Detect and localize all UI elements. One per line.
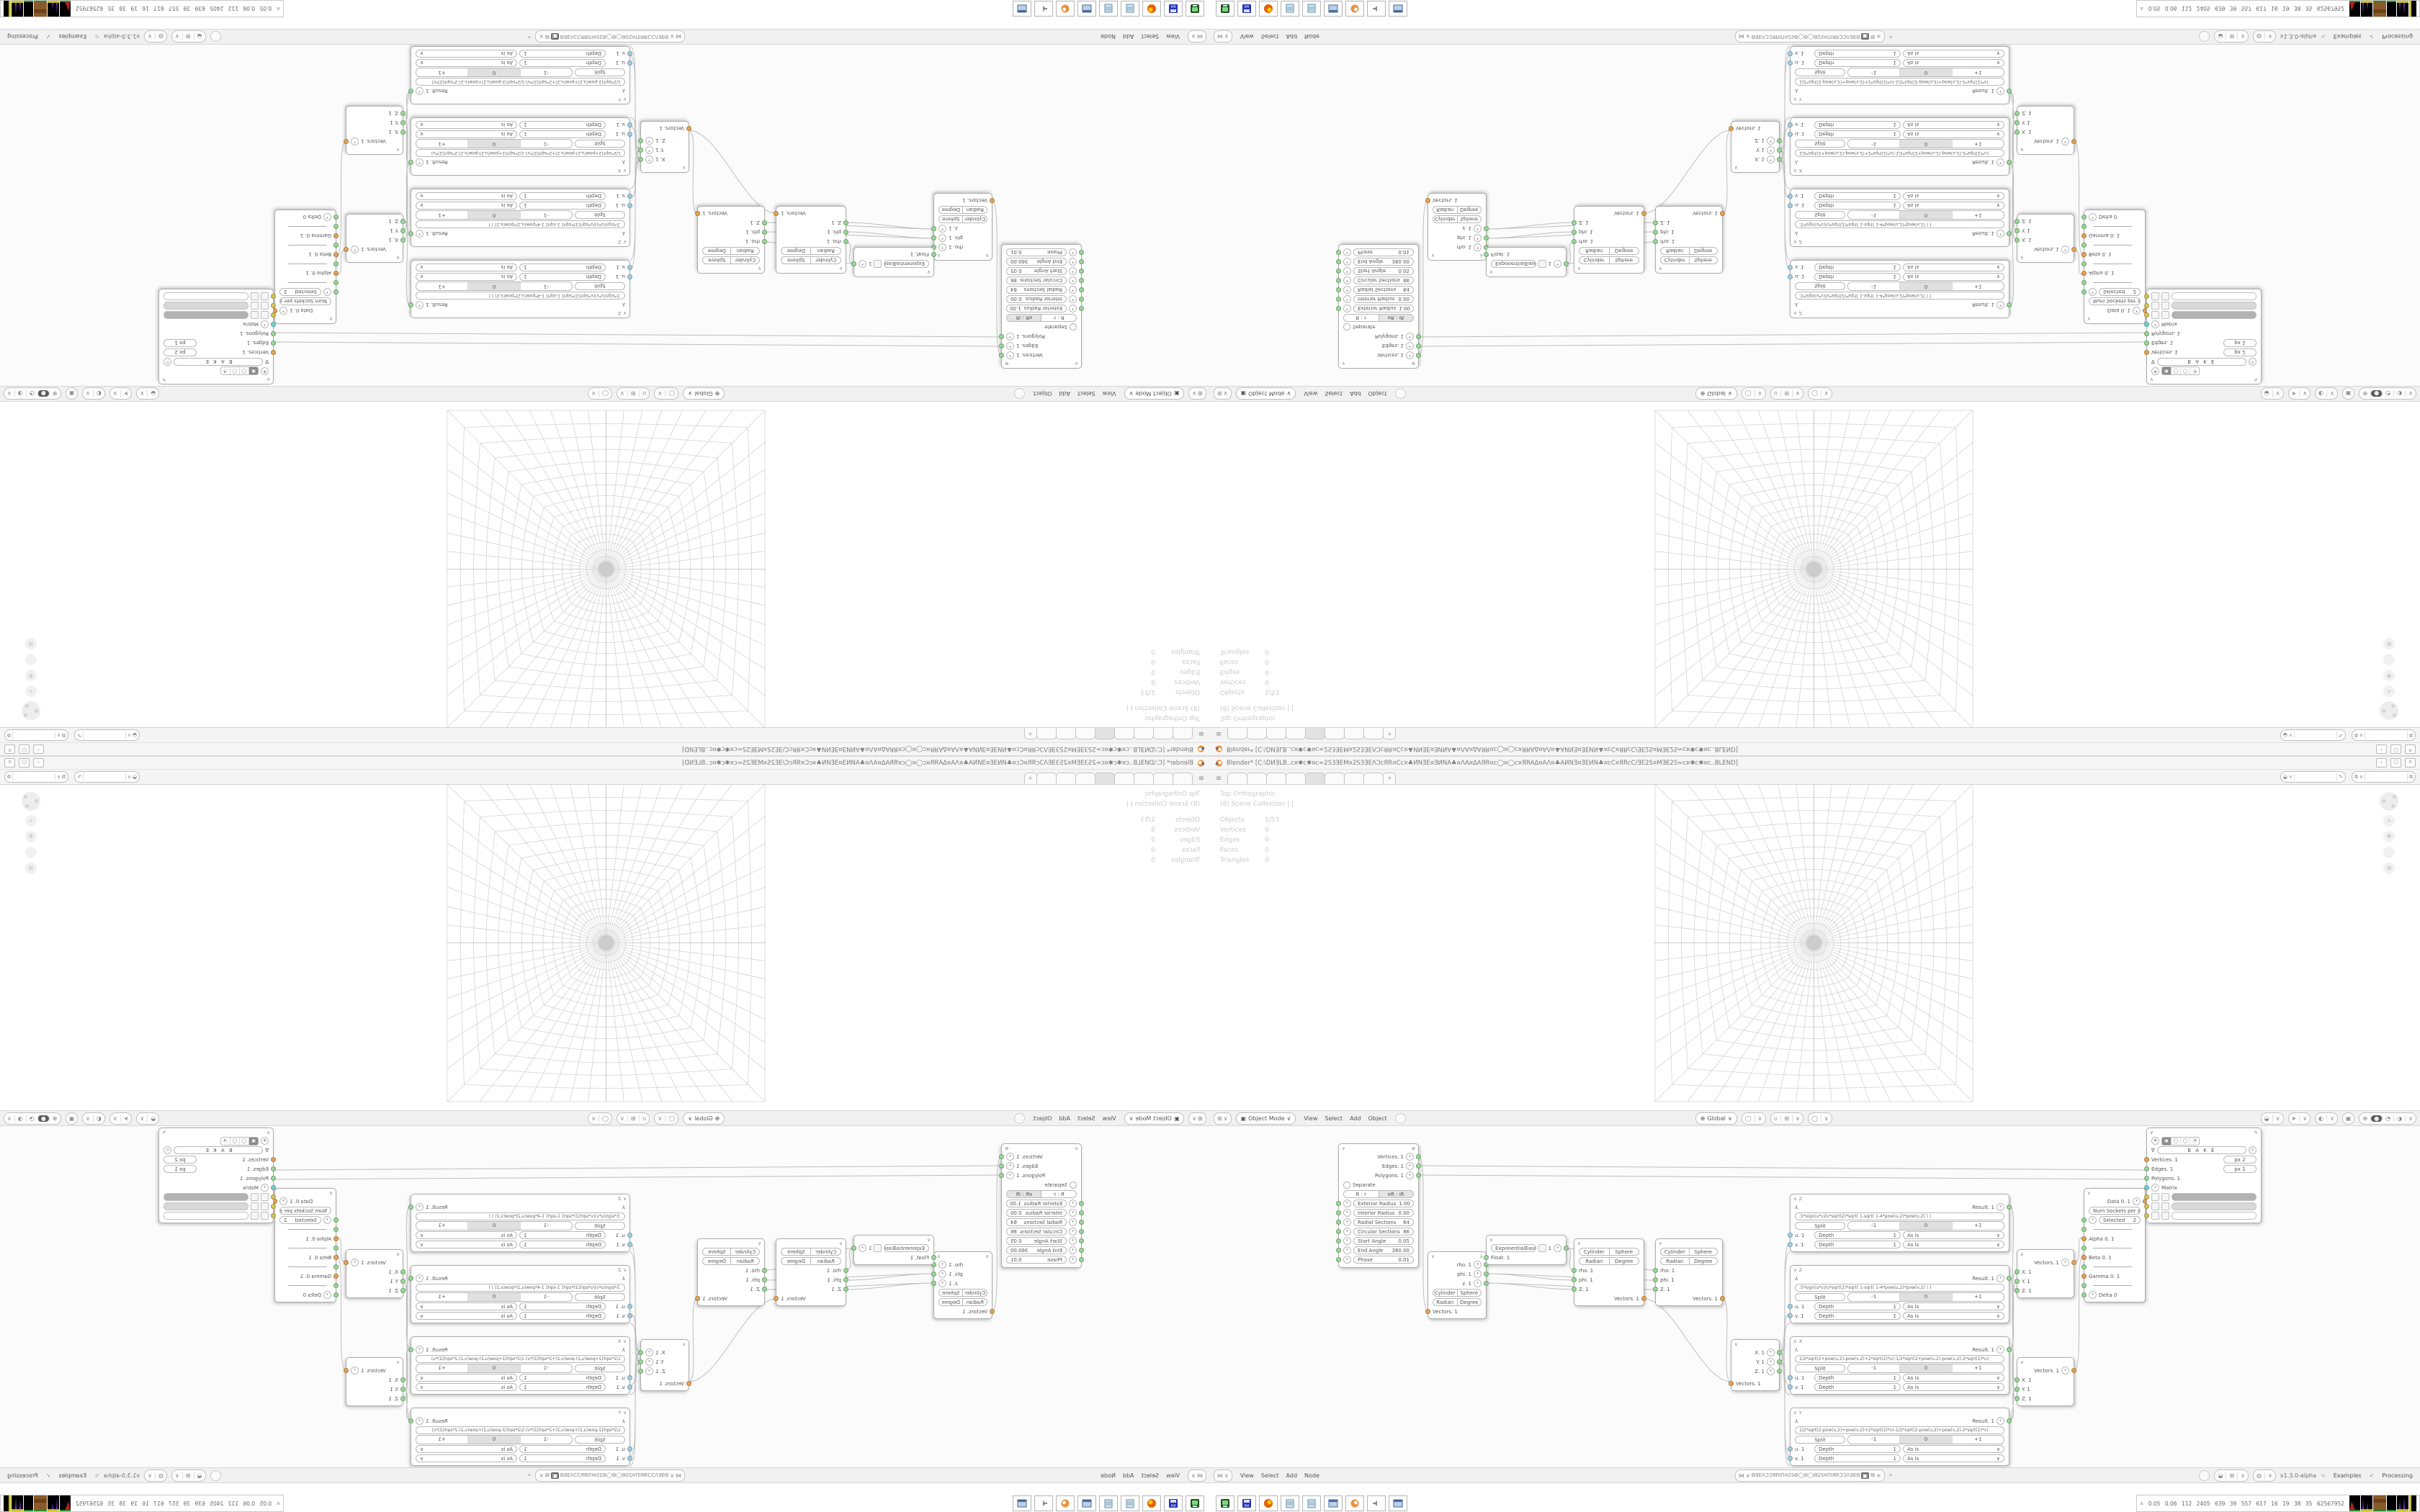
input-socket-row[interactable]: Z. 1 <box>1656 1284 1722 1294</box>
snap-group[interactable]: ◯ ∨ <box>654 1112 678 1125</box>
slot-row[interactable]: ▾Delta 0 <box>275 1290 336 1300</box>
ball-group[interactable]: ◍ ∨ <box>2253 31 2276 43</box>
vertices-input-row[interactable]: Vertices. 1 px 2 <box>159 348 273 357</box>
node-easing[interactable]: ∨ ExponentialEaseIn∨ 1 ▾ Float. 1 <box>1486 1235 1567 1265</box>
vertices-input-row[interactable]: Vertices. 1 px 2 <box>159 1155 273 1164</box>
v-input-row[interactable]: v. 1 Depth1 As is∨ <box>411 1382 629 1392</box>
output-socket-row[interactable]: Vectors. 1▾ <box>2017 1258 2074 1267</box>
input-socket-row[interactable]: rho. 1 <box>698 1266 764 1275</box>
torus-param-row[interactable]: ▾ Exterior Radius1.00 <box>1002 1199 1081 1208</box>
viewlayer-selector[interactable]: ⧉ ∨ ⧉ <box>4 729 68 741</box>
selected-row[interactable]: ▾ Selected2 <box>2084 1215 2145 1225</box>
menu-item[interactable]: Add <box>1055 1115 1074 1122</box>
ortho-gizmo-icon[interactable]: ⊞ <box>25 638 37 649</box>
menu-item[interactable]: View <box>1237 1472 1258 1479</box>
minimize-button[interactable]: – <box>33 744 44 754</box>
workspace-tab[interactable] <box>1075 728 1095 739</box>
input-socket-row[interactable]: Z. 1 <box>2017 217 2074 226</box>
magnet-group[interactable]: ∪ ⊞ ∨ <box>1770 388 1803 400</box>
user-grid-group[interactable]: ◒ ⊞ ∨ <box>2214 31 2249 43</box>
torus-param-row[interactable]: ▾ End Angle360.00 <box>1002 1246 1081 1255</box>
u-input-row[interactable]: u. 1 Depth1 As is∨ <box>411 272 629 282</box>
fake-user-shield-icon[interactable]: ▣ <box>1861 34 1870 40</box>
coords-toggle[interactable]: CylinderSphere <box>934 215 992 224</box>
node-editor[interactable]: ∨ ⊛ Vertices. 1▾ Edges. 1▾ Polygons. 1▾ … <box>1210 1126 2420 1467</box>
notepad-icon[interactable] <box>1281 1 1299 17</box>
output-socket-row[interactable]: Vectors. 1▾ <box>2017 1366 2074 1375</box>
input-socket-row[interactable]: Float. 1 <box>1487 1253 1566 1262</box>
node-editor[interactable]: ∨ ⊛ Vertices. 1▾ Edges. 1▾ Polygons. 1▾ … <box>0 45 1210 386</box>
polygon-color-row[interactable] <box>159 1211 273 1220</box>
floppy64-icon[interactable]: 64 <box>1164 1 1183 17</box>
selected-row[interactable]: ▾ Selected2 <box>275 1215 336 1225</box>
output-socket-row[interactable]: Polygons. 1▾ <box>1339 332 1418 341</box>
v-input-row[interactable]: v. 1 Depth1 As is∨ <box>411 49 629 58</box>
slot-row[interactable]: ▾Delta 0 <box>2084 1290 2145 1300</box>
node-easing[interactable]: ∨ ExponentialEaseIn∨ 1 ▾ Float. 1 <box>853 1235 934 1265</box>
collapse-icon[interactable]: ∨ <box>1342 361 1345 367</box>
input-socket-row[interactable]: phi. 1 <box>1656 1275 1722 1284</box>
node-vector-in-1[interactable]: ∨ Vectors. 1▾ X. 1 Y. 1 Z. 1 <box>2017 214 2074 263</box>
editor-type-button[interactable]: ⋈ ∨ <box>1188 31 1206 43</box>
split-row[interactable]: Split -1 0 +1 <box>411 282 629 291</box>
maximize-button[interactable]: ▢ <box>2390 744 2401 754</box>
firefox-icon[interactable] <box>1259 1 1278 17</box>
workspace-tab[interactable] <box>1056 773 1076 784</box>
slot-row[interactable]: Gamma 0. 1 <box>275 231 336 240</box>
scene-selector[interactable]: ◒ ∨ ✎ <box>74 729 140 741</box>
output-socket-row[interactable]: phi. 1▾ <box>1428 233 1486 243</box>
node-torus[interactable]: ∨ ⊛ Vertices. 1▾ Edges. 1▾ Polygons. 1▾ … <box>1001 244 1082 369</box>
input-socket-row[interactable]: Z. 1 <box>776 218 846 228</box>
input-socket-row[interactable]: Z. 1 <box>698 218 764 228</box>
magnet-group[interactable]: ∪ ⊞ ∨ <box>617 388 650 400</box>
torus-param-row[interactable]: ▾ Start Angle0.05 <box>1002 1236 1081 1246</box>
output-socket-row[interactable]: Edges. 1▾ <box>1339 1161 1418 1171</box>
torus-param-row[interactable]: ▾ Circular Sections86 <box>1339 276 1418 285</box>
input-socket-row[interactable]: phi. 1 <box>1574 1275 1644 1284</box>
split-row[interactable]: Split -1 0 +1 <box>411 1221 629 1230</box>
matrix-input-row[interactable]: ▾Matrix <box>159 320 273 329</box>
gizmo-toggle-group[interactable]: ➤ ∨ <box>2288 1112 2311 1125</box>
torus-param-row[interactable]: ▾ End Angle360.00 <box>1339 257 1418 266</box>
camera-gizmo-icon[interactable] <box>2383 654 2395 665</box>
add-workspace-button[interactable]: + <box>1383 773 1396 784</box>
menu-item[interactable]: Select <box>1137 1472 1162 1479</box>
u-input-row[interactable]: u. 1 Depth1 As is∨ <box>411 130 629 139</box>
node-formula[interactable]: ∨ Y ⅄ Result. 1▾ 1/2*sqrt(2-pow(u,2)+pow… <box>411 1408 630 1466</box>
visibility-group[interactable]: ◒ ∨ <box>136 1112 159 1125</box>
output-socket-row[interactable]: Z. 1▾ <box>1731 136 1779 145</box>
separate-checkbox-row[interactable]: Separate <box>1339 1180 1418 1189</box>
split-row[interactable]: Split -1 0 +1 <box>411 1364 629 1373</box>
viewport-3d[interactable]: Top Orthographic (8) Scene Collection | … <box>1210 785 2420 1110</box>
node-viewer-draw[interactable]: ∨ ✎ ◉ ▣◯◯◔ ∇ B A K E ◎ Vertices. 1 px 2 … <box>158 1128 274 1223</box>
vertices-input-row[interactable]: Vertices. 1 px 2 <box>2147 1155 2261 1164</box>
display-toggles-row[interactable]: ◉ ▣◯◯◔ <box>159 366 273 376</box>
nodetree-selector[interactable]: ⋈ ∨ ΘƎEΛϽϽЯRIΠ¤2SΘ◯Θ◯Θ2S¤ΠIЯRϽϽΛƎEΘ ▣ ⧉ … <box>535 1470 685 1482</box>
mode-selector[interactable]: ▣ Object Mode ∨ <box>1236 388 1296 400</box>
workspace-tab[interactable] <box>1056 728 1076 739</box>
tool-circle[interactable] <box>1395 1113 1406 1124</box>
input-socket-row[interactable]: Z. 1 <box>346 1394 403 1403</box>
workspace-tab[interactable] <box>1344 728 1364 739</box>
mode-selector[interactable]: ▣ Object Mode ∨ <box>1124 388 1185 400</box>
coords-toggle[interactable]: CylinderSphere <box>1428 215 1486 224</box>
workspace-tab[interactable] <box>1286 728 1306 739</box>
workspace-tab[interactable] <box>1134 728 1154 739</box>
processing-toggle[interactable]: Processing <box>2378 34 2416 40</box>
v-input-row[interactable]: v. 1 Depth1 As is∨ <box>1791 1311 2009 1320</box>
angle-toggle[interactable]: RadianDegree <box>1656 1256 1722 1266</box>
scene-selector[interactable]: ◒ ∨ ✎ <box>2280 729 2346 741</box>
input-socket-row[interactable]: phi. 1 <box>1574 228 1644 237</box>
zoom-gizmo-icon[interactable]: + <box>25 815 37 827</box>
new-layer-icon[interactable]: ⧉ <box>2409 774 2413 780</box>
edges-input-row[interactable]: Edges. 1 px 1 <box>159 338 273 348</box>
viewlayer-name-field[interactable] <box>12 773 55 780</box>
overlays-group[interactable]: ◐ ∨ <box>2315 1112 2338 1125</box>
angle-toggle[interactable]: RadianDegree <box>1574 246 1644 256</box>
v-input-row[interactable]: v. 1 Depth1 As is∨ <box>1791 1454 2009 1463</box>
result-output-row[interactable]: ⅄ Result. 1▾ <box>1791 300 2009 310</box>
workspace-tab[interactable] <box>1363 773 1384 784</box>
node-formula[interactable]: ∨ X ⅄ Result. 1▾ 1/2*sqrt(2+pow(u,2)-pow… <box>1790 1336 2009 1395</box>
drive-icon[interactable] <box>1186 1495 1204 1511</box>
blender-icon[interactable] <box>1345 1495 1364 1511</box>
output-socket-row[interactable]: Vectors. 1 <box>1574 209 1644 218</box>
torus-param-row[interactable]: ▾ Circular Sections86 <box>1339 1227 1418 1236</box>
coords-toggle[interactable]: CylinderSphere <box>698 256 764 265</box>
result-output-row[interactable]: ⅄ Result. 1▾ <box>411 86 629 96</box>
u-input-row[interactable]: u. 1 Depth1 As is∨ <box>411 58 629 68</box>
firefox-icon[interactable] <box>1142 1495 1161 1511</box>
node-vector-in-2[interactable]: ∨ Vectors. 1▾ X. 1 Y. 1 Z. 1 <box>2017 1357 2074 1406</box>
nodetree-selector[interactable]: ⋈ ∨ ΘƎEΛϽϽЯRIΠ¤2SΘ◯Θ◯Θ2S¤ΠIЯRϽϽΛƎEΘ ▣ ⧉ … <box>535 31 685 43</box>
minimize-button[interactable]: – <box>33 758 44 768</box>
coords-toggle[interactable]: CylinderSphere <box>698 1247 764 1256</box>
torus-param-row[interactable]: ▾ Start Angle0.05 <box>1002 266 1081 276</box>
result-output-row[interactable]: ⅄ Result. 1▾ <box>1791 229 2009 238</box>
vertex-color-row[interactable] <box>2147 1192 2261 1202</box>
slot-row[interactable]: Alpha 0. 1 <box>2084 269 2145 278</box>
node-formula[interactable]: ∨ Z ⅄ Result. 1▾ .5*sign(u*v)/v*sqrt(2)*… <box>1790 1194 2009 1252</box>
user-grid-group[interactable]: ◒ ⊞ ∨ <box>171 1470 206 1482</box>
pencil-icon[interactable]: ✎ <box>2254 1130 2258 1135</box>
visibility-group[interactable]: ◒ ∨ <box>2261 388 2284 400</box>
pencil-icon[interactable]: ✎ <box>162 377 166 383</box>
close-button[interactable]: × <box>2405 744 2416 754</box>
result-output-row[interactable]: ⅄ Result. 1▾ <box>1791 86 2009 96</box>
fake-user-shield-icon[interactable]: ▣ <box>551 1472 560 1479</box>
menu-item[interactable]: Add <box>1119 34 1138 40</box>
proportional-group[interactable]: ◯ ∨ <box>1808 388 1832 400</box>
input-socket-row[interactable]: Z. 1 <box>698 1284 764 1294</box>
output-socket-row[interactable]: z. 1▾ <box>934 1279 992 1288</box>
data-output-row[interactable]: Data 0. 1▾ <box>2084 1197 2145 1206</box>
polygons-input-row[interactable]: Polygons. 1 <box>159 1174 273 1183</box>
output-socket-row[interactable]: z. 1▾ <box>1428 1279 1486 1288</box>
split-row[interactable]: Split -1 0 +1 <box>411 210 629 220</box>
u-input-row[interactable]: u. 1 Depth1 As is∨ <box>411 201 629 210</box>
u-input-row[interactable]: u. 1 Depth1 As is∨ <box>411 1230 629 1240</box>
output-socket-row[interactable]: Edges. 1▾ <box>1002 341 1081 351</box>
slot-row[interactable]: Alpha 0. 1 <box>275 1234 336 1243</box>
split-row[interactable]: Split -1 0 +1 <box>1791 68 2009 77</box>
u-input-row[interactable]: u. 1 Depth1 As is∨ <box>1791 1444 2009 1454</box>
floppy64-icon[interactable]: 64 <box>1237 1 1256 17</box>
separate-checkbox-row[interactable]: Separate <box>1339 323 1418 332</box>
split-row[interactable]: Split -1 0 +1 <box>1791 1292 2009 1302</box>
snap-group[interactable]: ◯ ∨ <box>654 388 678 400</box>
polygons-input-row[interactable]: Polygons. 1 <box>159 329 273 338</box>
easing-preset-row[interactable]: ExponentialEaseIn∨ 1 ▾ <box>1487 259 1566 269</box>
processing-toggle[interactable]: Processing <box>4 34 42 40</box>
input-socket-row[interactable]: Z. 1 <box>346 1286 403 1295</box>
navigation-orb[interactable] <box>22 701 40 720</box>
navigation-orb[interactable] <box>2380 701 2398 720</box>
coords-toggle[interactable]: CylinderSphere <box>776 256 846 265</box>
input-socket-row[interactable]: rho. 1 <box>698 237 764 246</box>
speaker-icon[interactable] <box>1034 1 1053 17</box>
node-input-switch[interactable]: ∨ Data 0. 1▾ Num Sockets per set1 ▾ Sele… <box>274 210 336 324</box>
menu-item[interactable]: Select <box>1137 34 1162 40</box>
input-socket-row[interactable]: rho. 1 <box>776 237 846 246</box>
overlays-group[interactable]: ◐ ∨ <box>2315 388 2338 400</box>
drive-icon[interactable] <box>1216 1 1234 17</box>
input-socket-row[interactable]: Y. 1 <box>346 1277 403 1286</box>
input-socket-row[interactable]: X. 1 <box>2017 235 2074 245</box>
workspace-tab[interactable] <box>1036 728 1057 739</box>
input-socket-row[interactable]: Vectors. 1 <box>1731 1379 1779 1388</box>
output-socket-row[interactable]: Vectors. 1▾ <box>2017 137 2074 146</box>
output-socket-row[interactable]: Vectors. 1▾ <box>346 245 403 254</box>
snap-group[interactable]: ◯ ∨ <box>1742 388 1766 400</box>
viewport-3d[interactable]: Top Orthographic (8) Scene Collection | … <box>0 402 1210 727</box>
input-socket-row[interactable]: Z. 1 <box>346 217 403 226</box>
nodetree-selector[interactable]: ⋈ ∨ ΘƎEΛϽϽЯRIΠ¤2SΘ◯Θ◯Θ2S¤ΠIЯRϽϽΛƎEΘ ▣ ⧉ … <box>1735 1470 1885 1482</box>
gizmo-toggle-group[interactable]: ➤ ∨ <box>2288 388 2311 400</box>
input-socket-row[interactable]: Y. 1 <box>2017 1277 2074 1286</box>
orientation-selector[interactable]: ⊕ Global ∨ <box>683 388 725 400</box>
ortho-gizmo-icon[interactable]: ⊞ <box>2383 863 2395 874</box>
user-grid-group[interactable]: ◒ ⊞ ∨ <box>2214 1470 2249 1482</box>
edge-color-row[interactable] <box>2147 301 2261 310</box>
input-socket-row[interactable]: phi. 1 <box>698 1275 764 1284</box>
torus-param-row[interactable]: ▾ Phase0.01 <box>1339 248 1418 257</box>
output-socket-row[interactable]: Z. 1▾ <box>641 1367 689 1376</box>
workspace-tab[interactable] <box>1173 728 1193 739</box>
add-workspace-button[interactable]: + <box>1024 773 1037 784</box>
angle-toggle[interactable]: RadianDegree <box>1656 246 1722 256</box>
new-layer-icon[interactable]: ⧉ <box>2409 732 2413 739</box>
output-socket-row[interactable]: Vectors. 1 <box>1656 1294 1722 1303</box>
polygon-color-row[interactable] <box>2147 1211 2261 1220</box>
u-input-row[interactable]: u. 1 Depth1 As is∨ <box>1791 58 2009 68</box>
angle-toggle[interactable]: RadianDegree <box>1574 1256 1644 1266</box>
node-formula[interactable]: ∨ X ⅄ Result. 1▾ 1/2*sqrt(2+pow(u,2)-pow… <box>411 117 630 176</box>
torus-param-row[interactable]: ▾ End Angle360.00 <box>1002 257 1081 266</box>
menu-item[interactable]: View <box>1162 34 1183 40</box>
u-input-row[interactable]: u. 1 Depth1 As is∨ <box>1791 1302 2009 1311</box>
orientation-selector[interactable]: ⊕ Global ∨ <box>1695 388 1737 400</box>
input-socket-row[interactable]: Z. 1 <box>1574 1284 1644 1294</box>
speaker-icon[interactable] <box>1034 1495 1053 1511</box>
overlays-group[interactable]: ◐ ∨ <box>82 388 105 400</box>
editor-type-button[interactable]: ⋈ ∨ <box>1214 1470 1232 1482</box>
torus-mode-toggle[interactable]: R : reR : iR <box>1002 313 1081 323</box>
v-input-row[interactable]: v. 1 Depth1 As is∨ <box>411 1311 629 1320</box>
v-input-row[interactable]: v. 1 Depth1 As is∨ <box>411 1240 629 1249</box>
angle-toggle[interactable]: RadianDegree <box>934 1297 992 1307</box>
input-socket-row[interactable]: phi. 1 <box>776 1275 846 1284</box>
input-socket-row[interactable]: X. 1 <box>2017 127 2074 137</box>
display-toggles-row[interactable]: ◉ ▣◯◯◔ <box>159 1136 273 1146</box>
angle-toggle[interactable]: RadianDegree <box>934 205 992 215</box>
menu-item[interactable]: Add <box>1283 34 1301 40</box>
xray-toggle[interactable]: ▣ <box>2342 388 2355 400</box>
input-socket-row[interactable]: Z. 1 <box>2017 1394 2074 1403</box>
close-button[interactable]: × <box>2405 758 2416 768</box>
window-icon[interactable] <box>1013 1 1031 17</box>
zoom-gizmo-icon[interactable]: + <box>25 685 37 697</box>
input-socket-row[interactable]: Vectors. 1 <box>1428 196 1486 205</box>
selected-row[interactable]: ▾ Selected2 <box>275 287 336 297</box>
input-socket-row[interactable]: rho. 1 <box>1656 1266 1722 1275</box>
workspace-tab[interactable] <box>1095 773 1115 784</box>
output-socket-row[interactable]: X. 1▾ <box>1731 1348 1779 1357</box>
workspace-tab[interactable] <box>1227 728 1247 739</box>
menu-item[interactable]: Object <box>1029 391 1055 397</box>
edge-color-row[interactable] <box>2147 1202 2261 1211</box>
proportional-group[interactable]: ◯ ∨ <box>588 1112 612 1125</box>
overlays-group[interactable]: ◐ ∨ <box>82 1112 105 1125</box>
input-socket-row[interactable]: Vectors. 1 <box>1731 124 1779 133</box>
v-input-row[interactable]: v. 1 Depth1 As is∨ <box>411 263 629 272</box>
output-socket-row[interactable]: Edges. 1▾ <box>1002 1161 1081 1171</box>
formula-field-row[interactable]: 1/2*sqrt(2+pow(u,2)-pow(v,2)+2*sqrt(2)*u… <box>1791 1354 2009 1364</box>
node-vector-in-2[interactable]: ∨ Vectors. 1▾ X. 1 Y. 1 Z. 1 <box>346 1357 403 1406</box>
notepad-icon[interactable] <box>1121 1495 1139 1511</box>
input-socket-row[interactable]: Vectors. 1 <box>641 1379 689 1388</box>
polygons-input-row[interactable]: Polygons. 1 <box>2147 1174 2261 1183</box>
slot-row[interactable]: Gamma 0. 1 <box>2084 1272 2145 1281</box>
navigation-orb[interactable] <box>2380 792 2398 811</box>
u-input-row[interactable]: u. 1 Depth1 As is∨ <box>1791 201 2009 210</box>
split-row[interactable]: Split -1 0 +1 <box>411 1435 629 1444</box>
formula-field-row[interactable]: .5*sign(u*v)/v*sqrt(2)*sqrt( 1-sqrt( 1-4… <box>411 291 629 300</box>
add-workspace-button[interactable]: + <box>1383 728 1396 739</box>
vertex-color-row[interactable] <box>2147 310 2261 320</box>
torus-param-row[interactable]: ▾ Phase0.01 <box>1002 248 1081 257</box>
split-row[interactable]: Split -1 0 +1 <box>411 139 629 148</box>
workspace-tab[interactable] <box>1305 728 1325 739</box>
menu-item[interactable]: Select <box>1321 1115 1346 1122</box>
menu-item[interactable]: Add <box>1055 391 1074 397</box>
v-input-row[interactable]: v. 1 Depth1 As is∨ <box>1791 192 2009 201</box>
pin-icon[interactable]: ⌖ <box>1889 33 1893 40</box>
output-socket-row[interactable]: Vertices. 1▾ <box>1002 351 1081 360</box>
gizmo-toggle-group[interactable]: ➤ ∨ <box>109 388 133 400</box>
split-row[interactable]: Split -1 0 +1 <box>411 1292 629 1302</box>
slot-row[interactable]: Beta 0. 1 <box>275 1253 336 1262</box>
node-formula[interactable]: ∨ Z ⅄ Result. 1▾ .5*sign(u*v)/u*sqrt(2)*… <box>411 189 630 247</box>
tool-circle[interactable] <box>1014 1113 1025 1124</box>
input-socket-row[interactable]: Vectors. 1 <box>934 196 992 205</box>
move-gizmo-icon[interactable]: ✥ <box>2383 831 2395 842</box>
formula-field-row[interactable]: .5*sign(u*v)/u*sqrt(2)*sqrt( 1-sqrt( 1-4… <box>1791 1283 2009 1292</box>
fake-user-shield-icon[interactable]: ▣ <box>1861 1472 1870 1479</box>
shading-modes[interactable]: ⊕ ● ◔ ◑ ∨ <box>2359 388 2416 400</box>
node-vector-polar-in-2[interactable]: ∨ CylinderSphere RadianDegree rho. 1 phi… <box>697 1238 765 1306</box>
split-row[interactable]: Split -1 0 +1 <box>411 68 629 77</box>
input-socket-row[interactable]: rho. 1 <box>1656 237 1722 246</box>
menu-item[interactable]: Select <box>1074 1115 1099 1122</box>
input-socket-row[interactable]: Z. 1 <box>1656 218 1722 228</box>
scene-name-field[interactable] <box>2294 773 2337 780</box>
menu-item[interactable]: View <box>1099 1115 1120 1122</box>
xray-toggle[interactable]: ▣ <box>66 1112 79 1125</box>
editor-type-button[interactable]: ⊞ ∨ <box>1188 388 1206 400</box>
output-socket-row[interactable]: Vectors. 1 <box>776 1294 846 1303</box>
split-row[interactable]: Split -1 0 +1 <box>1791 1435 2009 1444</box>
floppy64-icon[interactable]: 64 <box>1164 1495 1183 1511</box>
input-socket-row[interactable]: Y. 1 <box>346 1385 403 1394</box>
output-socket-row[interactable]: Y. 1▾ <box>641 145 689 155</box>
blender-icon[interactable] <box>1345 1 1364 17</box>
pencil-icon[interactable]: ✎ <box>162 1130 166 1135</box>
edges-input-row[interactable]: Edges. 1 px 1 <box>159 1164 273 1174</box>
u-input-row[interactable]: u. 1 Depth1 As is∨ <box>411 1302 629 1311</box>
window-icon[interactable] <box>1324 1 1343 17</box>
gizmo-toggle-group[interactable]: ➤ ∨ <box>109 1112 133 1125</box>
slot-row[interactable]: ▾Delta 0 <box>275 212 336 222</box>
node-input-switch[interactable]: ∨ Data 0. 1▾ Num Sockets per set1 ▾ Sele… <box>2084 210 2146 324</box>
window-icon[interactable] <box>1077 1495 1096 1511</box>
easing-preset-row[interactable]: ExponentialEaseIn∨ 1 ▾ <box>854 259 933 269</box>
v-input-row[interactable]: v. 1 Depth1 As is∨ <box>1791 120 2009 130</box>
angle-toggle[interactable]: RadianDegree <box>698 246 764 256</box>
xray-toggle[interactable]: ▣ <box>66 388 79 400</box>
workspace-tab[interactable] <box>1266 728 1286 739</box>
v-input-row[interactable]: v. 1 Depth1 As is∨ <box>1791 1240 2009 1249</box>
move-gizmo-icon[interactable]: ✥ <box>25 831 37 842</box>
u-input-row[interactable]: u. 1 Depth1 As is∨ <box>1791 1230 2009 1240</box>
input-socket-row[interactable]: Y. 1 <box>2017 1385 2074 1394</box>
output-socket-row[interactable]: Vertices. 1▾ <box>1339 1152 1418 1161</box>
input-socket-row[interactable]: Z. 1 <box>776 1284 846 1294</box>
menu-item[interactable]: Object <box>1029 1115 1055 1122</box>
ball-group[interactable]: ◍ ∨ <box>2253 1470 2276 1482</box>
angle-toggle[interactable]: RadianDegree <box>1428 1297 1486 1307</box>
menu-item[interactable]: Node <box>1097 34 1119 40</box>
polygon-color-row[interactable] <box>159 292 273 301</box>
notepad-icon[interactable] <box>1302 1 1321 17</box>
torus-param-row[interactable]: ▾ Interior Radius0.00 <box>1339 1208 1418 1218</box>
node-vector-out[interactable]: ∨ X. 1▾ Y. 1▾ Z. 1▾ Vectors. 1 <box>640 121 689 173</box>
node-editor[interactable]: ∨ ⊛ Vertices. 1▾ Edges. 1▾ Polygons. 1▾ … <box>0 1126 1210 1467</box>
scene-name-field[interactable] <box>83 773 126 780</box>
input-socket-row[interactable]: Float. 1 <box>854 250 933 259</box>
formula-field-row[interactable]: 1/2*sqrt(2+pow(u,2)-pow(v,2)+2*sqrt(2)*u… <box>1791 148 2009 158</box>
formula-field-row[interactable]: 1/2*sqrt(2-pow(u,2)+pow(v,2)+2*sqrt(2)*v… <box>411 77 629 86</box>
node-vector-polar-in-1[interactable]: ∨ CylinderSphere RadianDegree rho. 1 phi… <box>776 206 846 274</box>
tool-circle[interactable] <box>1014 389 1025 400</box>
unlink-icon[interactable]: × <box>539 1472 544 1479</box>
slot-row[interactable]: Gamma 0. 1 <box>275 1272 336 1281</box>
edge-color-row[interactable] <box>159 301 273 310</box>
output-socket-row[interactable]: Polygons. 1▾ <box>1002 1171 1081 1180</box>
